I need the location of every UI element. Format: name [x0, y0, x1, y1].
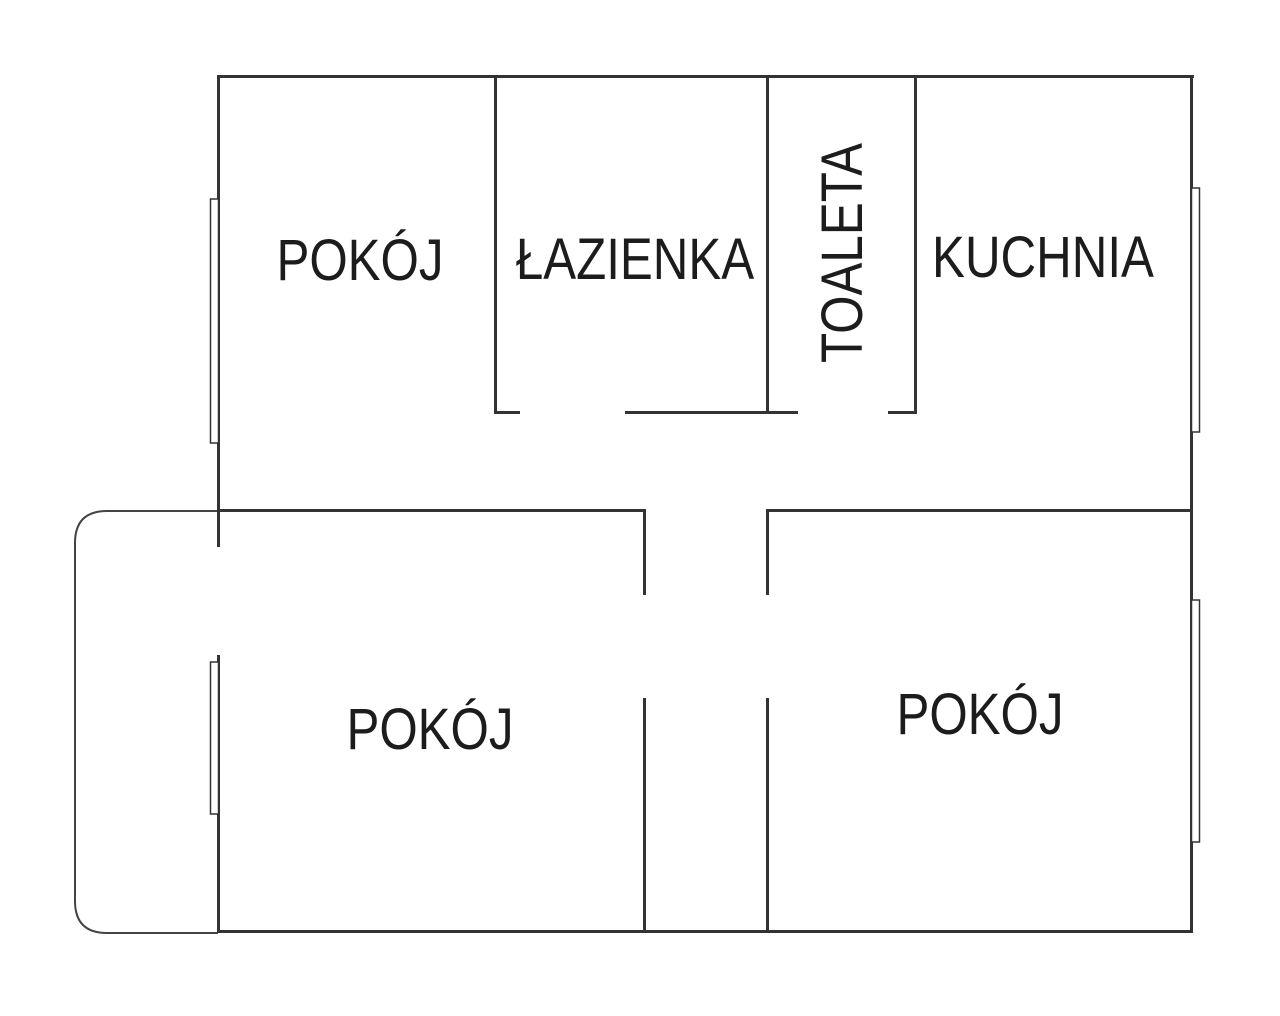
- wall-hall-left-lower: [643, 698, 646, 933]
- room-label-pokoj-top-left: POKÓJ: [276, 232, 443, 290]
- floor-plan-drawing: [0, 0, 1280, 1016]
- wall-middle-left: [217, 509, 645, 512]
- room-label-pokoj-bottom-left: POKÓJ: [346, 701, 513, 759]
- wall-bathroom-toilet: [766, 75, 769, 414]
- window-balcony-room-bottom-left: [211, 662, 219, 814]
- wall-hall-right-lower: [766, 698, 769, 933]
- window-room-top-left: [211, 199, 219, 443]
- wall-toilet-bottom-right-stub: [888, 411, 917, 414]
- wall-hall-left-upper: [643, 509, 646, 595]
- window-kitchen: [1192, 188, 1200, 432]
- wall-outer-top: [217, 75, 1194, 78]
- room-label-toaleta: TOALETA: [814, 143, 872, 363]
- wall-hall-right-upper: [766, 509, 769, 595]
- wall-toilet-kitchen: [914, 75, 917, 414]
- wall-bathroom-toilet-bottom: [625, 411, 798, 414]
- wall-room1-bathroom: [494, 75, 497, 414]
- room-label-pokoj-bottom-right: POKÓJ: [896, 686, 1063, 744]
- floor-plan: POKÓJ ŁAZIENKA TOALETA KUCHNIA POKÓJ POK…: [0, 0, 1280, 1016]
- wall-middle-right: [766, 509, 1193, 512]
- wall-outer-bottom: [217, 930, 1193, 933]
- window-room-bottom-right: [1192, 600, 1200, 842]
- wall-bathroom-bottom-left-stub: [494, 411, 520, 414]
- room-label-kuchnia: KUCHNIA: [932, 229, 1154, 287]
- room-label-lazienka: ŁAZIENKA: [516, 231, 754, 289]
- balcony-outline: [75, 511, 218, 933]
